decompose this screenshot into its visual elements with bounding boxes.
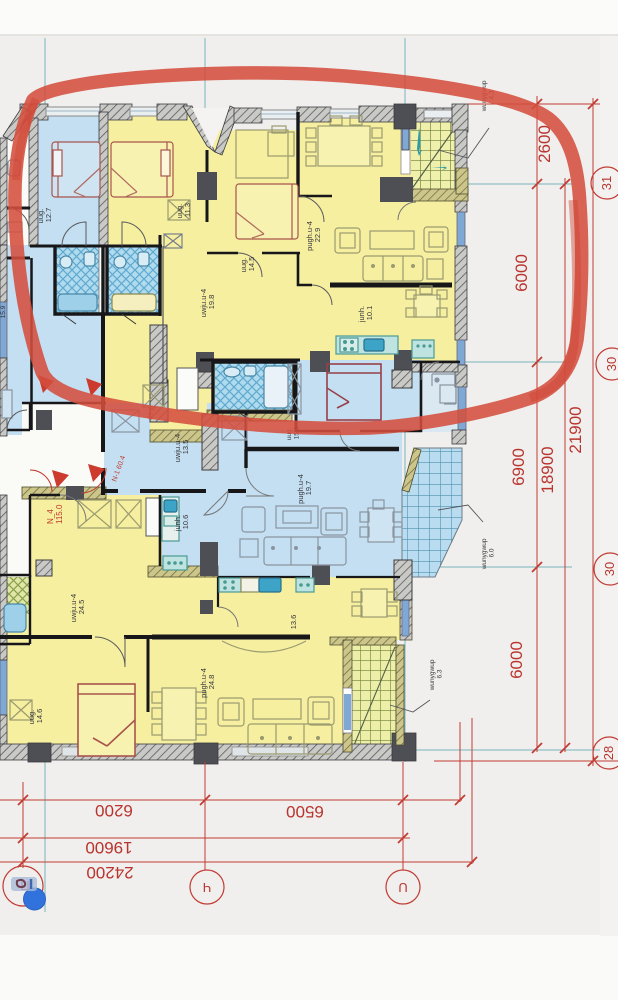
svg-text:6000: 6000	[507, 641, 526, 679]
svg-text:6900: 6900	[509, 448, 528, 486]
svg-text:6200: 6200	[95, 801, 133, 820]
svg-text:6000: 6000	[512, 254, 531, 292]
svg-text:6500: 6500	[286, 802, 324, 821]
svg-text:2600: 2600	[535, 125, 554, 163]
svg-text:uug. 12.7: uug. 12.7	[36, 207, 53, 224]
svg-text:30: 30	[602, 562, 617, 576]
svg-text:28: 28	[601, 746, 616, 760]
svg-text:18900: 18900	[538, 446, 557, 493]
svg-text:uug. 14.6: uug. 14.6	[27, 708, 44, 725]
svg-text:Ч: Ч	[203, 880, 212, 895]
svg-text:U: U	[398, 880, 407, 895]
svg-text:21900: 21900	[566, 406, 585, 453]
svg-text:15.9: 15.9	[0, 305, 7, 318]
svg-text:13.6: 13.6	[289, 615, 298, 630]
svg-text:junh. 10.1: junh. 10.1	[357, 304, 374, 323]
svg-text:30: 30	[604, 357, 618, 371]
svg-text:24200: 24200	[86, 863, 133, 882]
svg-text:19600: 19600	[85, 838, 132, 857]
svg-text:junh. 10.6: junh. 10.6	[173, 513, 190, 532]
svg-text:uug. 11.3: uug. 11.3	[175, 202, 192, 219]
svg-text:31: 31	[599, 176, 614, 190]
svg-text:uug. 14.5: uug. 14.5	[239, 256, 256, 273]
